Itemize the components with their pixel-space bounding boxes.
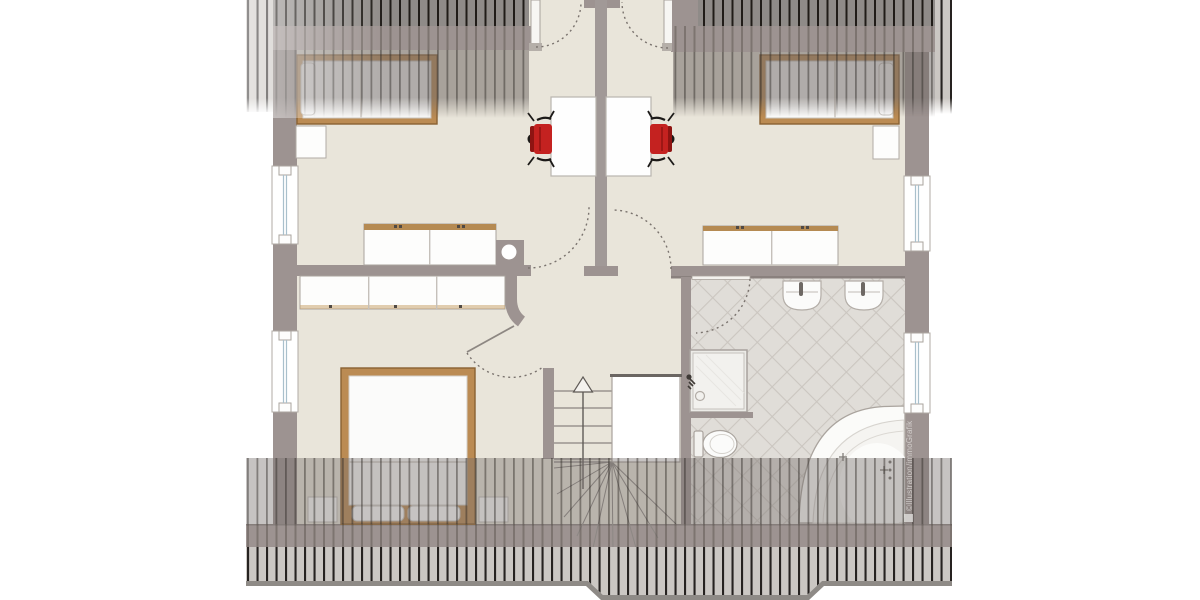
svg-text:©Illustration/immoGrafik: ©Illustration/immoGrafik bbox=[905, 420, 914, 511]
